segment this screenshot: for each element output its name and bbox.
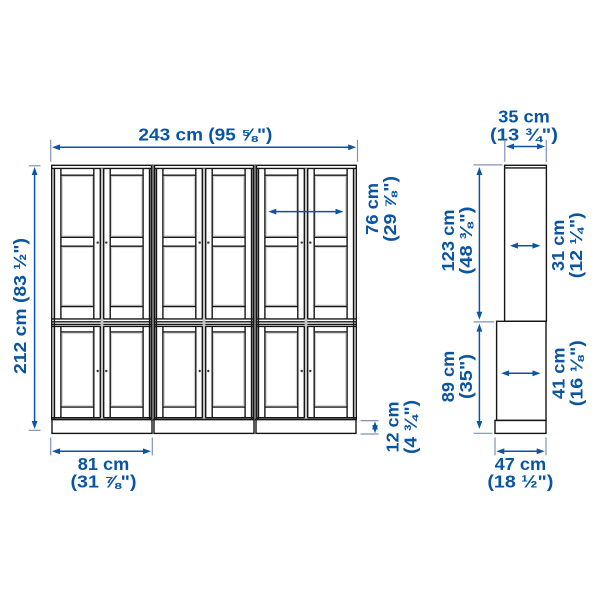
svg-text:(29 ⅞"): (29 ⅞"): [380, 176, 400, 242]
svg-text:31 cm: 31 cm: [548, 220, 568, 271]
svg-text:(13 ¾"): (13 ¾"): [490, 125, 558, 145]
svg-text:243 cm (95 ⅝"): 243 cm (95 ⅝"): [138, 124, 272, 144]
svg-text:(18 ½"): (18 ½"): [487, 472, 553, 492]
svg-text:(31 ⅞"): (31 ⅞"): [71, 472, 137, 492]
svg-text:41 cm: 41 cm: [548, 347, 568, 399]
svg-text:(35"): (35"): [456, 354, 476, 399]
svg-text:(4 ¾"): (4 ¾"): [401, 400, 421, 454]
svg-text:(48 ⅜"): (48 ⅜"): [456, 207, 476, 275]
svg-text:35 cm: 35 cm: [498, 106, 550, 126]
svg-text:(16 ⅛"): (16 ⅛"): [566, 340, 586, 406]
svg-text:212 cm (83 ½"): 212 cm (83 ½"): [10, 238, 30, 374]
svg-text:(12 ¼"): (12 ¼"): [566, 212, 586, 278]
svg-text:123 cm: 123 cm: [438, 210, 458, 272]
svg-text:89 cm: 89 cm: [438, 351, 458, 403]
svg-text:76 cm: 76 cm: [362, 183, 382, 235]
svg-text:12 cm: 12 cm: [383, 402, 403, 453]
